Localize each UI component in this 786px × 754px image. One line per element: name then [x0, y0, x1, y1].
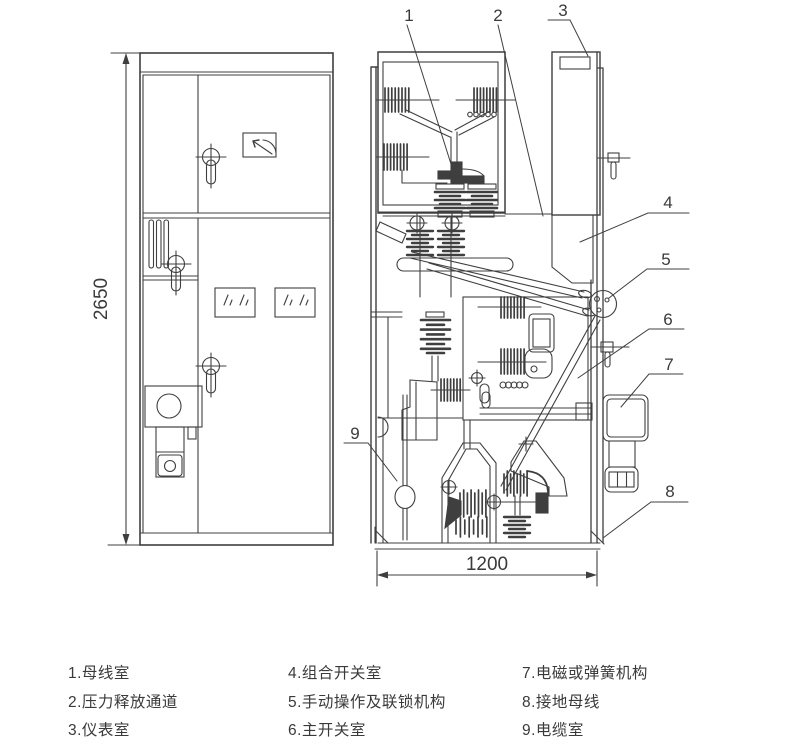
- page: { "colors": { "background": "#ffffff", "…: [0, 0, 786, 754]
- legend-column-1: 1.母线室 2.压力释放通道 3.仪表室: [68, 660, 178, 746]
- svg-text:3: 3: [558, 1, 567, 20]
- combined-switch-compartment: [552, 215, 593, 283]
- section-view: 1200: [371, 52, 648, 586]
- front-mechanism-box: [145, 386, 202, 477]
- vent-slats: [149, 220, 169, 268]
- legend-item-main-switch-room: 6.主开关室: [288, 717, 446, 746]
- feedthrough-bushings: [407, 213, 464, 297]
- lower-door-handle[interactable]: [196, 353, 226, 397]
- legend-column-2: 4.组合开关室 5.手动操作及联锁机构 6.主开关室: [288, 660, 446, 746]
- support-insulator: [402, 312, 489, 440]
- legend-item-manual-operation-interlock: 5.手动操作及联锁机构: [288, 689, 446, 718]
- width-dimension: 1200: [377, 551, 597, 586]
- callout-8: 8: [603, 482, 688, 538]
- panel-handle[interactable]: [597, 153, 630, 179]
- legend-item-pressure-release-channel: 2.压力释放通道: [68, 689, 178, 718]
- upper-door-handle[interactable]: [196, 144, 226, 188]
- left-column-handle[interactable]: [161, 251, 191, 295]
- width-dimension-label: 1200: [466, 554, 508, 575]
- svg-text:9: 9: [350, 424, 359, 443]
- height-dimension: 2650: [91, 53, 141, 545]
- height-dimension-label: 2650: [91, 278, 112, 320]
- legend-item-combined-switch-room: 4.组合开关室: [288, 660, 446, 689]
- cable: [395, 395, 415, 540]
- svg-text:5: 5: [661, 250, 670, 269]
- svg-text:2: 2: [493, 6, 502, 25]
- meter-icon: [243, 133, 276, 157]
- legend-item-busbar-room: 1.母线室: [68, 660, 178, 689]
- louver-window: [275, 288, 315, 317]
- instrument-panel: [552, 52, 600, 215]
- louver-window: [215, 288, 255, 317]
- busbar-contact: [438, 162, 484, 183]
- legend-item-instrument-room: 3.仪表室: [68, 717, 178, 746]
- svg-text:6: 6: [663, 310, 672, 329]
- callout-1: 1: [404, 6, 451, 164]
- svg-text:4: 4: [663, 193, 672, 212]
- cable-compartment: [378, 392, 592, 543]
- switchgear-diagram: 2650: [0, 0, 786, 754]
- svg-text:8: 8: [665, 482, 674, 501]
- legend-item-electromagnetic-spring-mechanism: 7.电磁或弹簧机构: [522, 660, 648, 689]
- svg-text:7: 7: [664, 355, 673, 374]
- legend: 1.母线室 2.压力释放通道 3.仪表室 4.组合开关室 5.手动操作及联锁机构…: [0, 660, 786, 754]
- busbar-compartment: [376, 52, 515, 217]
- callout-3: 3: [548, 1, 588, 56]
- mechanism-box: [603, 395, 648, 492]
- legend-column-3: 7.电磁或弹簧机构 8.接地母线 9.电缆室: [522, 660, 648, 746]
- callout-2: 2: [493, 6, 543, 216]
- pressure-relief-flap: [376, 214, 552, 271]
- front-view: 2650: [91, 53, 333, 545]
- callout-5: 5: [609, 250, 689, 298]
- svg-text:1: 1: [404, 6, 413, 25]
- legend-item-cable-room: 9.电缆室: [522, 717, 648, 746]
- legend-item-grounding-busbar: 8.接地母线: [522, 689, 648, 718]
